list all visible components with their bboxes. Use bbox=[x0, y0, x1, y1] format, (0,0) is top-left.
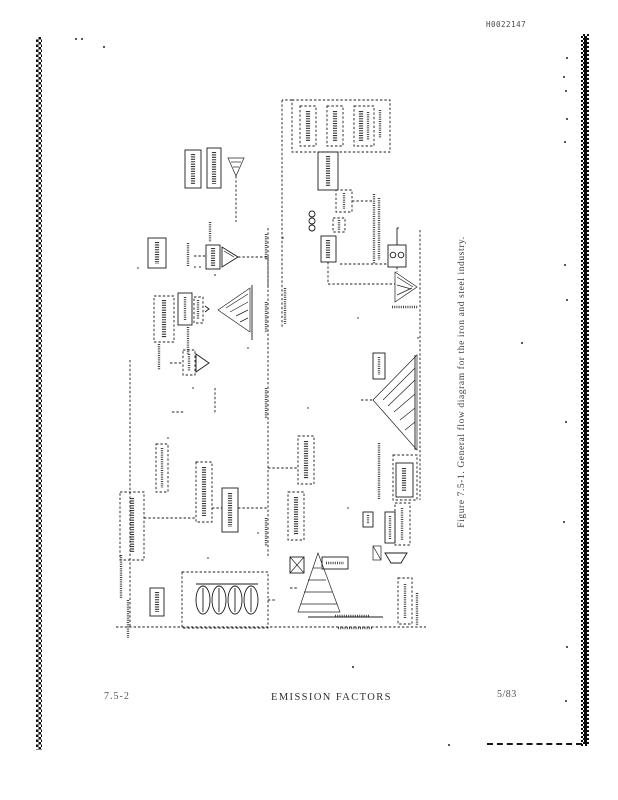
scan-speck bbox=[352, 666, 354, 668]
scan-speck bbox=[521, 342, 523, 344]
footer-date: 5/83 bbox=[497, 689, 517, 700]
footer-title: EMISSION FACTORS bbox=[271, 692, 392, 703]
scan-speck bbox=[566, 57, 568, 59]
scan-speck bbox=[565, 90, 567, 92]
scan-speck bbox=[81, 38, 83, 40]
flow-diagram-figure bbox=[108, 88, 428, 663]
scan-speck bbox=[563, 521, 565, 523]
scan-speck bbox=[564, 141, 566, 143]
scan-speck bbox=[563, 76, 565, 78]
scan-speck bbox=[75, 38, 77, 40]
footer-page-number: 7.5-2 bbox=[104, 691, 130, 702]
scan-bottom-dashed-line bbox=[487, 743, 582, 745]
scan-speck bbox=[565, 421, 567, 423]
scan-speck bbox=[564, 264, 566, 266]
scan-speck bbox=[448, 744, 450, 746]
scan-speck bbox=[103, 46, 105, 48]
scan-speck bbox=[566, 646, 568, 648]
scan-speck bbox=[565, 700, 567, 702]
scanned-document-page: H0022147 Figure 7.5-1. General flow diag… bbox=[0, 0, 618, 800]
scan-speck bbox=[566, 118, 568, 120]
scan-edge-left bbox=[36, 37, 42, 750]
scan-id-code: H0022147 bbox=[486, 20, 526, 29]
scan-speck bbox=[566, 299, 568, 301]
figure-caption: Figure 7.5-1. General flow diagram for t… bbox=[457, 192, 473, 572]
scan-edge-right-core bbox=[584, 36, 587, 744]
